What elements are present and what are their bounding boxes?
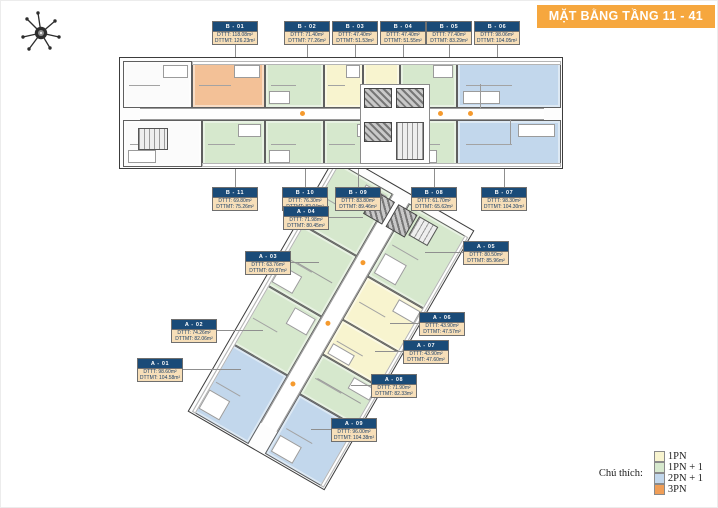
callout-connector bbox=[375, 351, 403, 352]
legend-item-label: 1PN bbox=[668, 451, 687, 462]
unit-id: B - 01 bbox=[213, 22, 257, 32]
callout-connector bbox=[329, 217, 363, 218]
callout-connector bbox=[497, 44, 498, 57]
unit-callout: B - 04 DTTT: 47.40m² DTTMT: 51.55m² bbox=[380, 21, 426, 45]
unit-area-b02 bbox=[265, 61, 324, 108]
callout-connector bbox=[351, 385, 371, 386]
callout-connector bbox=[307, 44, 308, 57]
unit-callout: A - 08 DTTT: 71.90m² DTTMT: 82.33m² bbox=[371, 374, 417, 398]
unit-area-dtmt: DTTMT: 126.23m² bbox=[213, 38, 257, 44]
unit-callout: B - 02 DTTT: 71.40m² DTTMT: 77.26m² bbox=[284, 21, 330, 45]
unit-callout: B - 07 DTTT: 98.30m² DTTMT: 104.30m² bbox=[481, 187, 527, 211]
unit-area-dtmt: DTTMT: 69.87m² bbox=[246, 268, 290, 274]
unit-id: B - 05 bbox=[427, 22, 471, 32]
callout-connector bbox=[183, 369, 241, 370]
unit-callout: B - 05 DTTT: 77.40m² DTTMT: 83.29m² bbox=[426, 21, 472, 45]
unit-callout: A - 06 DTTT: 43.90m² DTTMT: 47.57m² bbox=[419, 312, 465, 336]
legend-color-swatch bbox=[654, 462, 665, 473]
tower-b-wing bbox=[119, 57, 563, 169]
corridor-marker bbox=[300, 111, 305, 116]
unit-area-dtmt: DTTMT: 80.45m² bbox=[284, 223, 328, 229]
legend-color-swatch bbox=[654, 484, 665, 495]
legend-item: 2PN + 1 bbox=[654, 473, 703, 484]
legend-item-label: 2PN + 1 bbox=[668, 473, 703, 484]
unit-id: B - 03 bbox=[333, 22, 377, 32]
unit-id: B - 02 bbox=[285, 22, 329, 32]
unit-id: B - 09 bbox=[336, 188, 380, 198]
unit-area-dtmt: DTTMT: 77.26m² bbox=[285, 38, 329, 44]
unit-area-dtmt: DTTMT: 83.29m² bbox=[427, 38, 471, 44]
elevator-core-b bbox=[364, 88, 392, 108]
unit-callout: A - 09 DTTT: 96.00m² DTTMT: 104.38m² bbox=[331, 418, 377, 442]
corridor-marker bbox=[438, 111, 443, 116]
callout-connector bbox=[311, 429, 331, 430]
callout-connector bbox=[355, 44, 356, 57]
elevator-core-b bbox=[396, 88, 424, 108]
legend-item-label: 3PN bbox=[668, 484, 687, 495]
unit-area-b03 bbox=[324, 61, 363, 108]
callout-connector bbox=[434, 169, 435, 187]
service-area-left-top bbox=[123, 61, 192, 108]
legend-color-swatch bbox=[654, 473, 665, 484]
unit-area-dtmt: DTTMT: 82.06m² bbox=[172, 336, 216, 342]
unit-callout: A - 04 DTTT: 71.98m² DTTMT: 80.45m² bbox=[283, 206, 329, 230]
unit-id: A - 07 bbox=[404, 341, 448, 351]
corridor-b bbox=[140, 108, 544, 120]
callout-connector bbox=[449, 44, 450, 57]
unit-id: A - 02 bbox=[172, 320, 216, 330]
unit-callout: B - 01 DTTT: 118.08m² DTTMT: 126.23m² bbox=[212, 21, 258, 45]
compass-icon bbox=[17, 7, 65, 55]
unit-area-dtmt: DTTMT: 104.30m² bbox=[482, 204, 526, 210]
floor-plan-page: MẶT BẰNG TẦNG 11 - 41 bbox=[0, 0, 718, 508]
unit-id: B - 07 bbox=[482, 188, 526, 198]
unit-id: B - 06 bbox=[475, 22, 519, 32]
unit-callout: A - 05 DTTT: 80.50m² DTTMT: 85.96m² bbox=[463, 241, 509, 265]
unit-area-dtmt: DTTMT: 47.57m² bbox=[420, 329, 464, 335]
corridor-marker bbox=[468, 111, 473, 116]
legend-item: 1PN bbox=[654, 451, 703, 462]
callout-connector bbox=[390, 323, 419, 324]
unit-area-dtmt: DTTMT: 104.05m² bbox=[475, 38, 519, 44]
wall-line bbox=[510, 120, 511, 144]
unit-id: A - 08 bbox=[372, 375, 416, 385]
callout-connector bbox=[235, 44, 236, 57]
legend-items: 1PN 1PN + 1 2PN + 1 3PN bbox=[648, 451, 703, 495]
unit-area-b06 bbox=[457, 61, 561, 108]
unit-callout: A - 07 DTTT: 43.90m² DTTMT: 47.60m² bbox=[403, 340, 449, 364]
callout-connector bbox=[305, 169, 306, 187]
callout-connector bbox=[425, 252, 463, 253]
legend: Chú thích: 1PN 1PN + 1 2PN + 1 3PN bbox=[599, 451, 703, 495]
unit-callout: A - 03 DTTT: 63.76m² DTTMT: 69.87m² bbox=[245, 251, 291, 275]
unit-area-dtmt: DTTMT: 104.58m² bbox=[138, 375, 182, 381]
unit-area-dtmt: DTTMT: 85.96m² bbox=[464, 258, 508, 264]
callout-connector bbox=[291, 262, 319, 263]
unit-callout: A - 02 DTTT: 74.26m² DTTMT: 82.06m² bbox=[171, 319, 217, 343]
unit-callout: B - 06 DTTT: 98.06m² DTTMT: 104.05m² bbox=[474, 21, 520, 45]
unit-area-dtmt: DTTMT: 104.38m² bbox=[332, 435, 376, 441]
callout-connector bbox=[235, 169, 236, 187]
legend-item-label: 1PN + 1 bbox=[668, 462, 703, 473]
unit-area-b10 bbox=[265, 120, 324, 167]
legend-item: 1PN + 1 bbox=[654, 462, 703, 473]
legend-item: 3PN bbox=[654, 484, 703, 495]
unit-callout: A - 01 DTTT: 98.60m² DTTMT: 104.58m² bbox=[137, 358, 183, 382]
unit-id: A - 04 bbox=[284, 207, 328, 217]
wall-line bbox=[480, 84, 481, 108]
unit-area-dtmt: DTTMT: 51.55m² bbox=[381, 38, 425, 44]
unit-id: A - 01 bbox=[138, 359, 182, 369]
unit-area-dtmt: DTTMT: 51.53m² bbox=[333, 38, 377, 44]
legend-color-swatch bbox=[654, 451, 665, 462]
elevator-core-b bbox=[364, 122, 392, 142]
unit-callout: B - 08 DTTT: 61.70m² DTTMT: 65.62m² bbox=[411, 187, 457, 211]
unit-area-dtmt: DTTMT: 47.60m² bbox=[404, 357, 448, 363]
stair-core-b bbox=[396, 122, 424, 160]
unit-id: A - 06 bbox=[420, 313, 464, 323]
balcony-strip bbox=[192, 61, 561, 65]
unit-id: B - 10 bbox=[283, 188, 327, 198]
unit-area-dtmt: DTTMT: 75.26m² bbox=[213, 204, 257, 210]
unit-area-dtmt: DTTMT: 82.33m² bbox=[372, 391, 416, 397]
unit-area-b01 bbox=[192, 61, 265, 108]
legend-label: Chú thích: bbox=[599, 468, 643, 479]
unit-area-dtmt: DTTMT: 65.62m² bbox=[412, 204, 456, 210]
unit-area-dtmt: DTTMT: 89.46m² bbox=[336, 204, 380, 210]
floor-title-banner: MẶT BẰNG TẦNG 11 - 41 bbox=[537, 5, 715, 28]
stair-core-left bbox=[138, 128, 168, 150]
unit-id: A - 09 bbox=[332, 419, 376, 429]
callout-connector bbox=[504, 169, 505, 187]
callout-connector bbox=[403, 44, 404, 57]
callout-connector bbox=[358, 169, 359, 187]
unit-id: B - 08 bbox=[412, 188, 456, 198]
unit-callout: B - 09 DTTT: 83.80m² DTTMT: 89.46m² bbox=[335, 187, 381, 211]
callout-connector bbox=[217, 330, 263, 331]
unit-id: B - 11 bbox=[213, 188, 257, 198]
unit-area-b11 bbox=[202, 120, 265, 167]
unit-callout: B - 03 DTTT: 47.40m² DTTMT: 51.53m² bbox=[332, 21, 378, 45]
unit-id: A - 05 bbox=[464, 242, 508, 252]
unit-area-b07 bbox=[457, 120, 561, 167]
unit-callout: B - 11 DTTT: 69.80m² DTTMT: 75.26m² bbox=[212, 187, 258, 211]
unit-id: B - 04 bbox=[381, 22, 425, 32]
unit-id: A - 03 bbox=[246, 252, 290, 262]
